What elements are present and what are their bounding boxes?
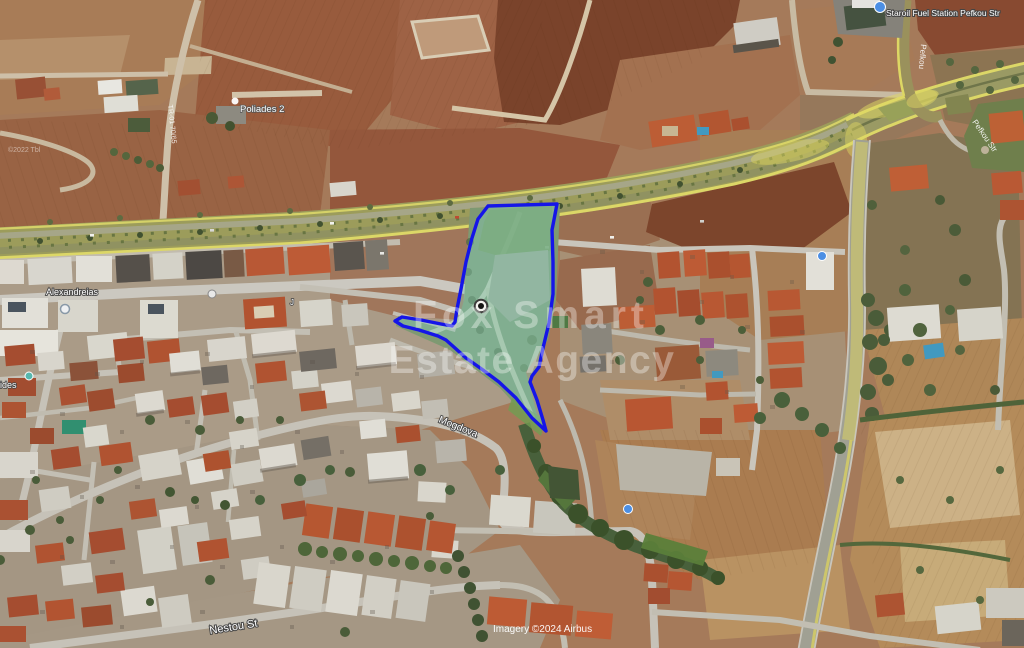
svg-text:Poliades 2: Poliades 2 <box>240 104 284 115</box>
svg-text:J: J <box>290 298 294 307</box>
svg-text:Alexandreias: Alexandreias <box>46 287 99 297</box>
svg-text:Imagery ©2024 Airbus: Imagery ©2024 Airbus <box>493 624 592 635</box>
svg-text:Fox Smart: Fox Smart <box>413 294 649 337</box>
svg-text:©2022 Tbl: ©2022 Tbl <box>8 146 41 154</box>
svg-text:llides: llides <box>0 380 17 390</box>
svg-text:Estate Agency: Estate Agency <box>389 339 676 382</box>
svg-text:Staroil Fuel Station Pefkou St: Staroil Fuel Station Pefkou Str <box>886 8 1000 18</box>
